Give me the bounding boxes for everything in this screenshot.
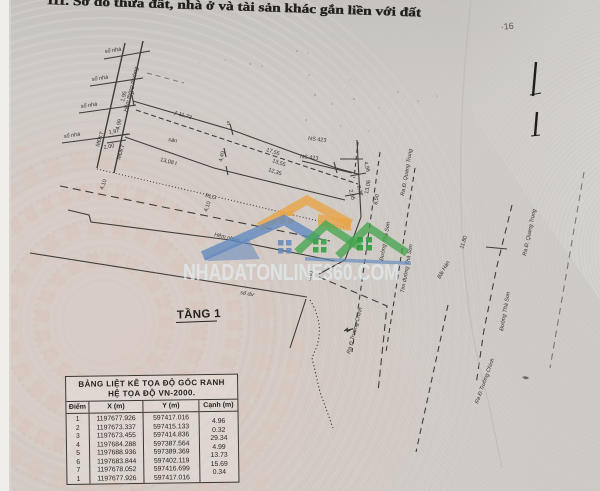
svg-text:5: 5 [227,121,230,127]
svg-text:4: 4 [131,91,134,97]
svg-text:NHADATONLINE360.COM: NHADATONLINE360.COM [183,259,399,285]
svg-text:·16: ·16 [500,21,514,32]
svg-text:TẦNG 1: TẦNG 1 [177,307,222,322]
